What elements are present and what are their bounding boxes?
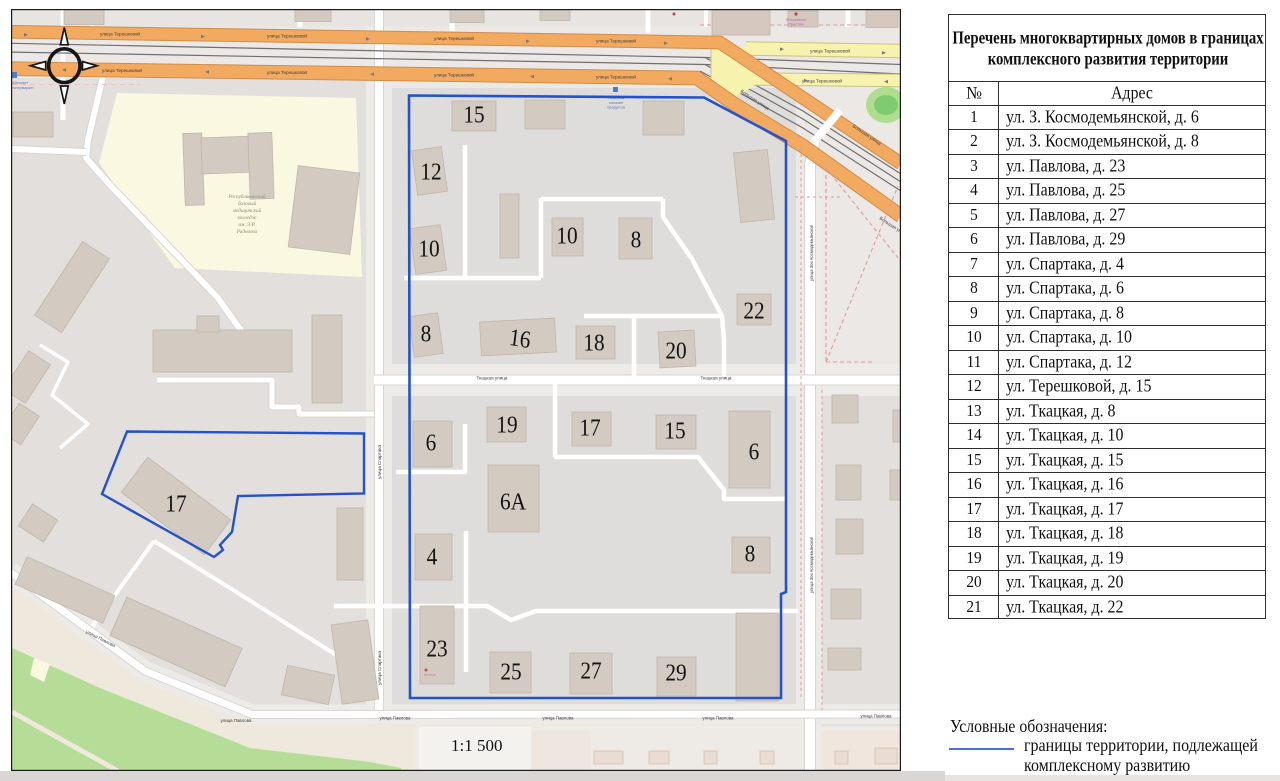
svg-text:23: 23 [426,635,447,662]
svg-text:улица Павлова: улица Павлова [861,714,892,719]
svg-text:им. Э.Р.: им. Э.Р. [238,222,255,228]
svg-text:Ткацкая улица: Ткацкая улица [477,376,508,381]
svg-text:продуктов: продуктов [607,106,625,110]
svg-text:улица Терешковой: улица Терешковой [434,71,474,77]
svg-text:8: 8 [421,320,432,347]
svg-text:улица Павлова: улица Павлова [543,716,574,721]
svg-text:25: 25 [500,658,521,685]
svg-text:медицинский: медицинский [232,207,262,214]
svg-text:улица Павлова: улица Павлова [221,718,252,723]
svg-text:20: 20 [665,337,686,364]
svg-text:1:1 500: 1:1 500 [451,736,502,755]
svg-text:улица Терешковой: улица Терешковой [810,48,850,54]
svg-text:Ткацкая улица: Ткацкая улица [701,376,732,381]
svg-text:16: 16 [508,324,532,354]
svg-text:Абсолют: Абсолют [12,80,28,85]
svg-text:29: 29 [665,659,686,686]
svg-text:Фотоателье: Фотоателье [786,18,807,22]
svg-text:10: 10 [556,222,577,249]
svg-text:18: 18 [583,329,604,356]
svg-text:улица Павлова: улица Павлова [703,716,734,721]
svg-text:Раднаева: Раднаева [236,228,258,235]
svg-text:магазин: магазин [609,101,623,105]
svg-text:улица Павлова: улица Павлова [380,716,411,721]
svg-text:Престиж: Престиж [788,23,804,27]
svg-text:10: 10 [418,235,439,262]
svg-text:улица Терешковой: улица Терешковой [267,69,307,75]
svg-text:улица Терешковой: улица Терешковой [267,33,307,39]
svg-text:колледж: колледж [238,214,257,221]
svg-text:улица Спартака: улица Спартака [377,445,382,479]
svg-text:27: 27 [580,657,601,684]
svg-text:улица Терешковой: улица Терешковой [102,67,142,73]
svg-text:улица Терешковой: улица Терешковой [100,30,140,36]
svg-text:6А: 6А [500,488,526,515]
svg-text:22: 22 [743,297,764,324]
svg-text:улица Терешковой: улица Терешковой [596,74,636,80]
svg-text:Аптека: Аптека [424,673,436,677]
svg-text:8: 8 [745,540,756,567]
svg-text:улица Зои Космодемьянской: улица Зои Космодемьянской [809,224,814,281]
svg-text:базовый: базовый [238,200,257,207]
svg-text:8: 8 [631,226,642,253]
svg-text:4: 4 [427,543,438,570]
svg-text:улица Терешковой: улица Терешковой [802,78,842,84]
svg-text:15: 15 [664,417,685,444]
svg-text:12: 12 [420,158,441,185]
svg-text:Республиканский: Республиканский [227,193,266,200]
svg-text:15: 15 [463,101,484,128]
svg-text:улица Терешковой: улица Терешковой [596,38,636,44]
svg-text:17: 17 [165,490,186,517]
svg-text:улица Спартака: улица Спартака [377,651,382,685]
svg-text:6: 6 [749,438,760,465]
svg-text:улица Зои Космодемьянской: улица Зои Космодемьянской [809,536,814,593]
svg-text:гипермаркет: гипермаркет [12,86,34,90]
svg-text:17: 17 [579,414,600,441]
svg-text:улица Терешковой: улица Терешковой [434,35,474,41]
svg-text:19: 19 [496,411,517,438]
svg-text:6: 6 [426,429,437,456]
